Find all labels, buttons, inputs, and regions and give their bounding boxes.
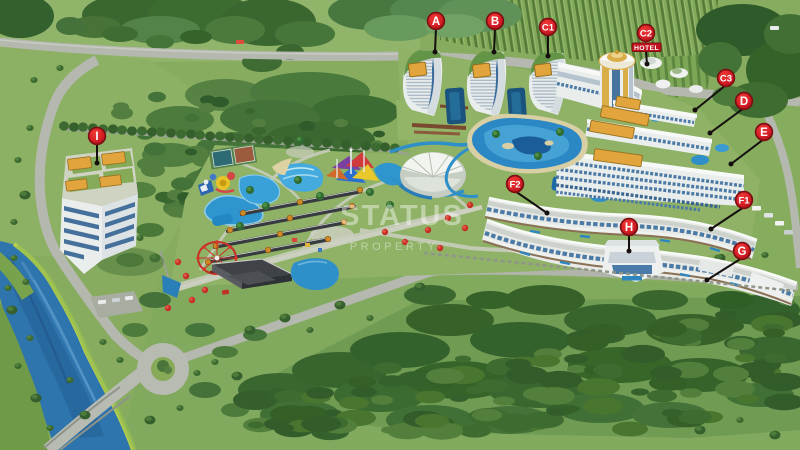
svg-text:STATUS: STATUS xyxy=(340,200,464,232)
svg-text:PROPERTY: PROPERTY xyxy=(350,241,438,253)
svg-text:A: A xyxy=(432,16,440,28)
svg-text:C3: C3 xyxy=(720,74,732,85)
svg-text:C1: C1 xyxy=(542,23,555,34)
svg-text:HOTEL: HOTEL xyxy=(634,45,659,52)
svg-text:G: G xyxy=(738,246,747,258)
svg-text:C2: C2 xyxy=(640,29,652,40)
svg-text:D: D xyxy=(740,96,748,108)
svg-text:I: I xyxy=(95,131,98,143)
svg-text:E: E xyxy=(760,127,768,139)
svg-text:B: B xyxy=(491,16,499,28)
svg-text:H: H xyxy=(625,222,633,234)
svg-text:F2: F2 xyxy=(509,180,520,191)
svg-text:F1: F1 xyxy=(738,196,750,207)
